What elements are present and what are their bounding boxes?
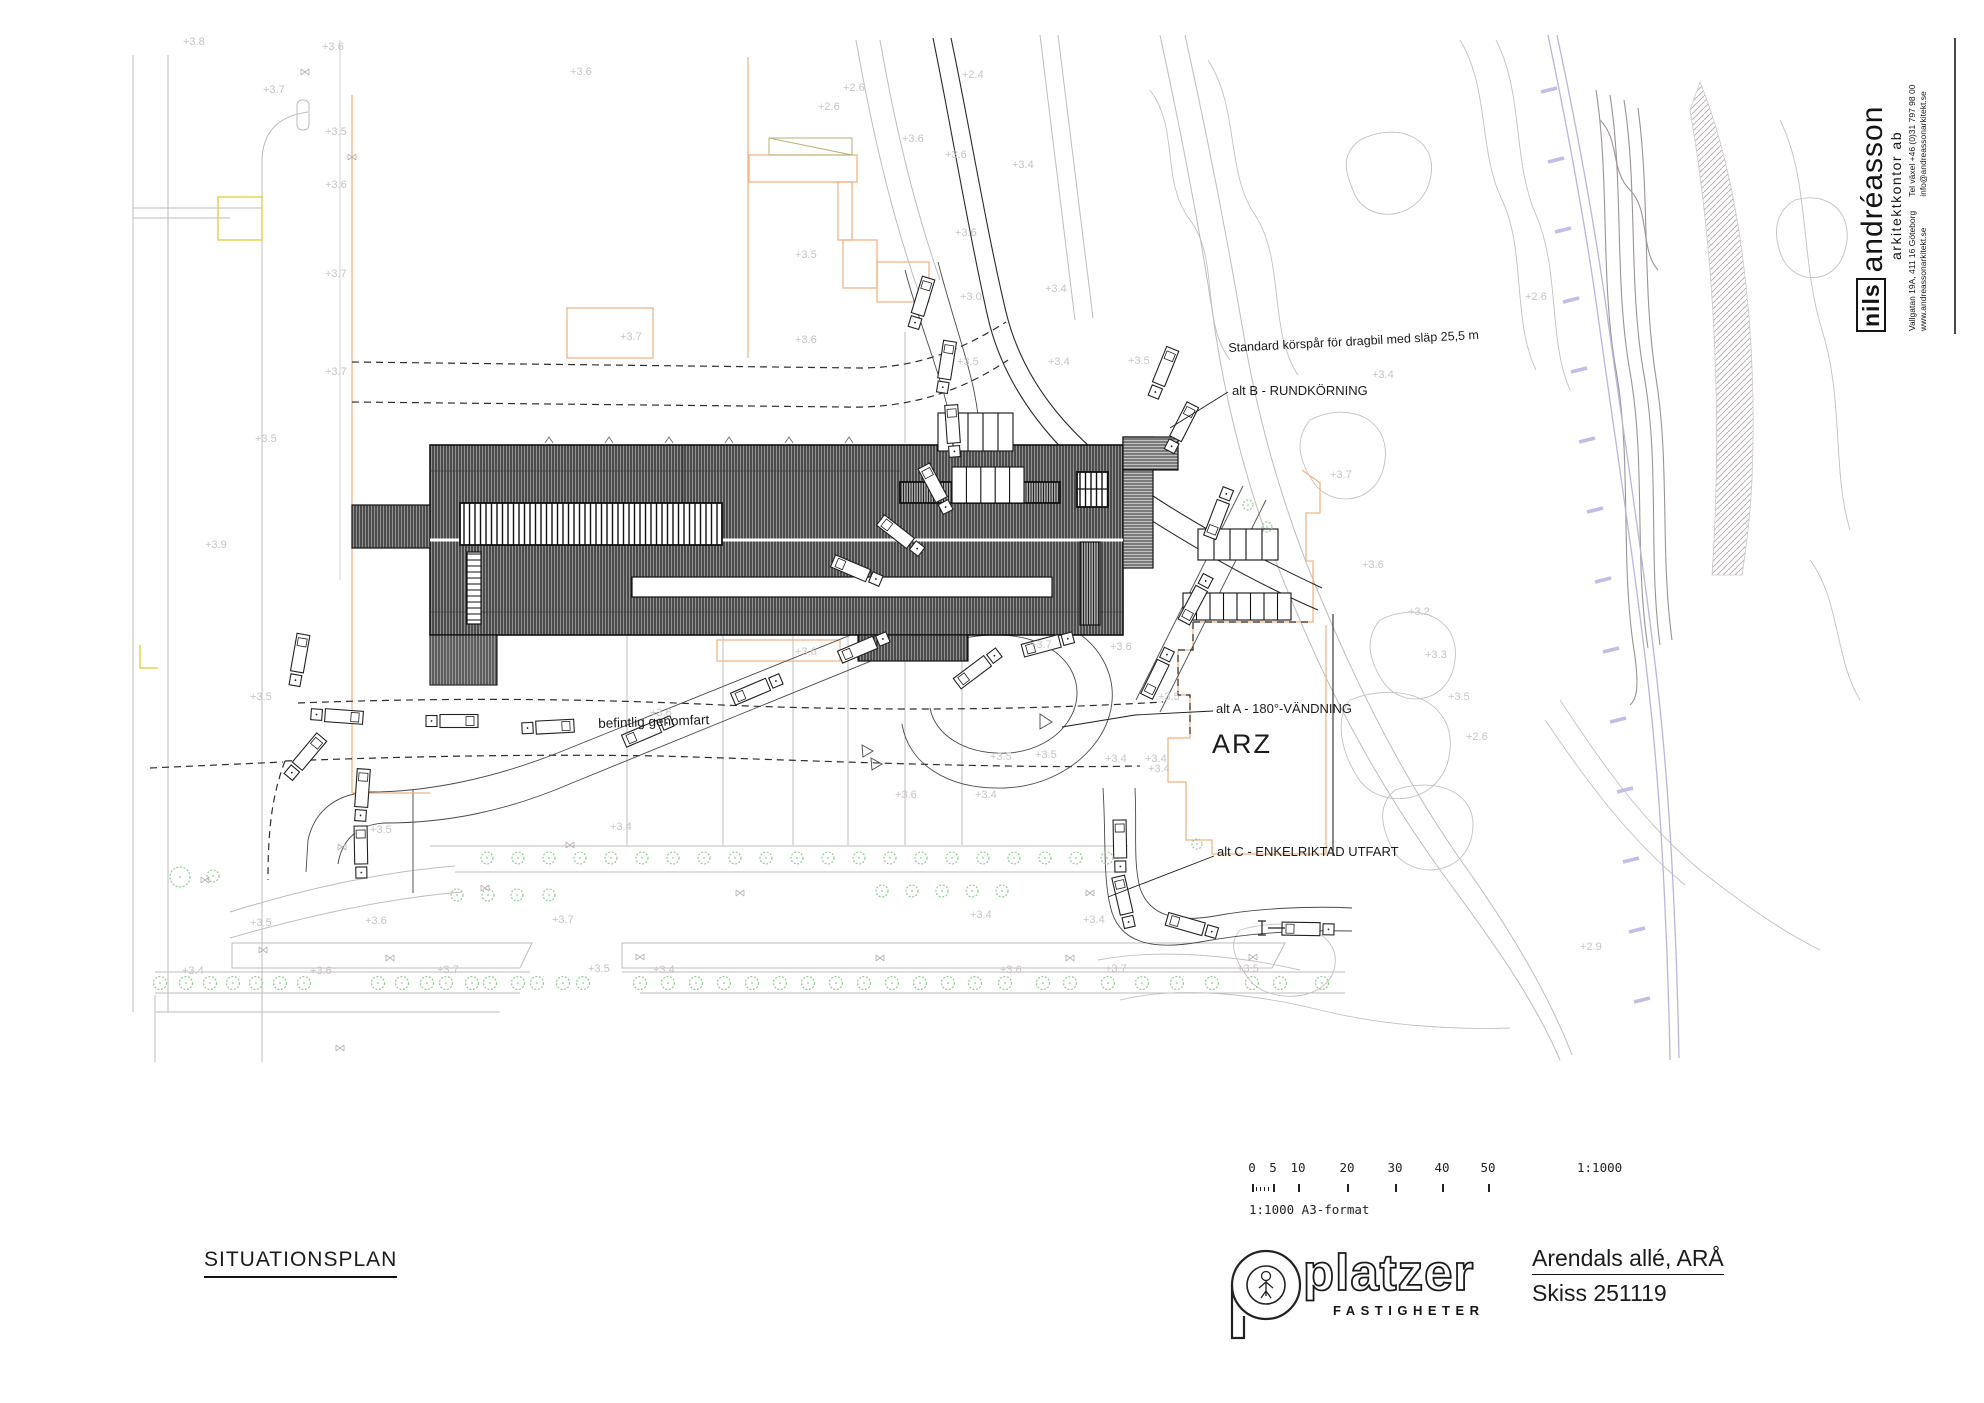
spot-elevation-label: +3.5	[250, 691, 272, 703]
tree-center-dot	[579, 857, 581, 859]
spot-elevation-label: +3.5	[990, 751, 1012, 763]
railway-sleeper	[1603, 648, 1619, 652]
spot-elevation-label: +3.5	[1237, 963, 1259, 975]
tree-center-dot	[723, 982, 725, 984]
sheet-edge-rule	[1954, 38, 1956, 334]
spot-elevation-label: +3.3	[1425, 649, 1447, 661]
spot-elevation-label: +3.8	[183, 36, 205, 48]
spot-elevation-label: +3.6	[325, 179, 347, 191]
spot-elevation-label: +3.5	[250, 917, 272, 929]
spot-elevation-label: +3.5	[255, 433, 277, 445]
spot-elevation-label: +3.7	[620, 331, 642, 343]
railway-sleeper	[1617, 788, 1633, 792]
scale-minor-tick	[1264, 1187, 1265, 1191]
railway-sleeper	[1634, 998, 1650, 1002]
spot-elevation-label: +3.5	[957, 356, 979, 368]
railway-sleeper	[1629, 928, 1645, 932]
spot-elevation-label: +3.4	[1048, 356, 1070, 368]
spot-elevation-label: +3.4	[1012, 159, 1034, 171]
tree-center-dot	[1279, 982, 1281, 984]
spot-elevation-label: +3.6	[1000, 964, 1022, 976]
spot-elevation-label: +3.2	[1408, 606, 1430, 618]
scale-number: 30	[1387, 1160, 1402, 1175]
spot-elevation-label: +3.0	[960, 291, 982, 303]
spot-elevation-label: +3.4	[653, 964, 675, 976]
lamp-icon	[1086, 890, 1094, 896]
tree-center-dot	[1013, 857, 1015, 859]
lamp-icon	[386, 955, 394, 961]
sketch-number: Skiss 251119	[1532, 1280, 1667, 1307]
label-alt-a: alt A - 180°-VÄNDNING	[1216, 701, 1352, 716]
tree-center-dot	[1247, 504, 1249, 506]
railway-sleeper	[1610, 718, 1626, 722]
spot-elevation-label: +3.6	[795, 646, 817, 658]
tree-center-dot	[471, 982, 473, 984]
tree-center-dot	[1176, 982, 1178, 984]
spot-elevation-label: +3.6	[795, 334, 817, 346]
tree-center-dot	[827, 857, 829, 859]
drawing-sheet: +3.8+3.7+3.6+3.5+3.6+3.7+3.7+3.5+3.9+3.5…	[0, 0, 1984, 1403]
railway-sleeper	[1587, 508, 1603, 512]
scale-minor-tick	[1256, 1187, 1257, 1191]
tree-center-dot	[891, 982, 893, 984]
tree-center-dot	[445, 982, 447, 984]
tree-center-dot	[456, 894, 458, 896]
railway-sleeper	[1595, 578, 1611, 582]
scale-tick	[1442, 1184, 1444, 1192]
tree-center-dot	[303, 982, 305, 984]
lamp-icon	[1066, 955, 1074, 961]
spot-elevation-label: +2.9	[1580, 941, 1602, 953]
spot-elevation-label: +3.4	[1105, 753, 1127, 765]
tree-center-dot	[582, 982, 584, 984]
lamp-icon	[259, 947, 267, 953]
tree-center-dot	[517, 982, 519, 984]
truck-icon	[907, 276, 935, 330]
tree-center-dot	[641, 857, 643, 859]
olive-outline	[769, 138, 852, 155]
spot-elevation-label: +3.4	[1045, 283, 1067, 295]
spot-elevation-label: +3.7	[1030, 639, 1052, 651]
tree-center-dot	[426, 982, 428, 984]
tree-center-dot	[548, 894, 550, 896]
architect-contact: Tel växel +46 (0)31 797 98 00 info@andre…	[1907, 85, 1928, 197]
truck-icon	[1113, 820, 1127, 872]
spot-elevation-label: +3.4	[1372, 369, 1394, 381]
scale-ratio: 1:1000	[1577, 1160, 1622, 1175]
architect-logo-prefix: nils	[1856, 278, 1886, 332]
spot-elevation-label: +3.4	[610, 821, 632, 833]
yellow-marks	[140, 197, 262, 668]
spot-elevation-label: +3.5	[1128, 355, 1150, 367]
project-title: Arendals allé, ARÅ	[1532, 1245, 1724, 1275]
tree-center-dot	[209, 982, 211, 984]
tree-center-dot	[703, 857, 705, 859]
platzer-logo-word: platzer	[1303, 1243, 1474, 1302]
tree-center-dot	[974, 982, 976, 984]
tree-center-dot	[610, 857, 612, 859]
truck-icon	[283, 733, 326, 781]
tree-center-dot	[1069, 982, 1071, 984]
tree-center-dot	[779, 982, 781, 984]
truck-icon	[522, 719, 575, 735]
scale-tick	[1252, 1184, 1254, 1192]
truck-icon	[288, 633, 310, 686]
scale-format-note: 1:1000 A3-format	[1249, 1202, 1369, 1217]
railway-sleeper	[1579, 438, 1595, 442]
site-plan-canvas: +3.8+3.7+3.6+3.5+3.6+3.7+3.7+3.5+3.9+3.5…	[0, 0, 1984, 1403]
scale-number: 50	[1480, 1160, 1495, 1175]
spot-elevation-label: +3.6	[1110, 641, 1132, 653]
architect-logo-name: andréasson	[1859, 106, 1886, 273]
truck-icon	[1147, 346, 1179, 399]
truck-icon	[354, 769, 371, 822]
spot-elevation-label: +3.4	[1145, 753, 1167, 765]
lamp-icon	[566, 842, 574, 848]
tree-center-dot	[279, 982, 281, 984]
tree-center-dot	[536, 982, 538, 984]
label-alt-b: alt B - RUNDKÖRNING	[1232, 383, 1368, 398]
label-alt-c: alt C - ENKELRIKTAD UTFART	[1217, 844, 1399, 859]
railway-sleeper	[1548, 158, 1564, 162]
tree-center-dot	[1251, 982, 1253, 984]
spot-elevation-label: +3.7	[263, 84, 285, 96]
tree-center-dot	[1001, 890, 1003, 892]
scale-number: 10	[1290, 1160, 1305, 1175]
lamp-icon	[736, 890, 744, 896]
scale-number: 20	[1339, 1160, 1354, 1175]
scale-number: 0	[1248, 1160, 1256, 1175]
railway-sleeper	[1571, 368, 1587, 372]
tree-center-dot	[765, 857, 767, 859]
railway-line	[1548, 35, 1679, 1060]
tree-center-dot	[1106, 857, 1108, 859]
tree-center-dot	[487, 894, 489, 896]
railway-sleeper	[1541, 88, 1557, 92]
spot-elevation-label: +2.6	[1466, 731, 1488, 743]
tree-center-dot	[807, 982, 809, 984]
spot-elevation-label: +2.6	[843, 82, 865, 94]
railway-sleepers	[1541, 88, 1650, 1002]
tree-center-dot	[562, 982, 564, 984]
tree-center-dot	[517, 857, 519, 859]
lamp-icon	[1249, 954, 1257, 960]
tree-center-dot	[982, 857, 984, 859]
railway-sleeper	[1623, 858, 1639, 862]
spot-elevation-label: +3.9	[205, 539, 227, 551]
spot-elevation-label: +3.4	[182, 965, 204, 977]
drawing-title: SITUATIONSPLAN	[204, 1248, 397, 1278]
tree-center-dot	[185, 982, 187, 984]
tree-center-dot	[1321, 982, 1323, 984]
spot-elevation-label: +3.5	[1035, 749, 1057, 761]
architect-logo-block: nils andréasson arkitektkontor ab Vallga…	[1856, 58, 1932, 332]
lamp-icon	[481, 885, 489, 891]
scale-tick	[1298, 1184, 1300, 1192]
tree-center-dot	[863, 982, 865, 984]
tree-center-dot	[159, 982, 161, 984]
tree-center-dot	[401, 982, 403, 984]
spot-elevation-label: +3.5	[1448, 691, 1470, 703]
tree-center-dot	[1107, 982, 1109, 984]
tree-center-dot	[255, 982, 257, 984]
contour-band-dark	[1596, 90, 1672, 705]
spot-elevation-label: +3.5	[588, 963, 610, 975]
scale-number: 5	[1269, 1160, 1277, 1175]
truck-icon	[1163, 402, 1198, 454]
truck-icon	[311, 708, 364, 725]
truck-icon	[354, 826, 368, 878]
spot-elevation-label: +3.7	[437, 964, 459, 976]
spot-elevation-label: +3.6	[955, 227, 977, 239]
spot-elevation-label: +3.6	[322, 41, 344, 53]
spot-elevation-label: +3.6	[365, 915, 387, 927]
tree-center-dot	[796, 857, 798, 859]
spot-elevation-label: +3.5	[1158, 691, 1180, 703]
tree-center-dot	[751, 982, 753, 984]
spot-elevation-label: +2.6	[1525, 291, 1547, 303]
tree-center-dot	[947, 982, 949, 984]
railway-sleeper	[1555, 228, 1571, 232]
spot-elevation-label: +3.6	[310, 965, 332, 977]
scale-tick	[1395, 1184, 1397, 1192]
tree-center-dot	[911, 890, 913, 892]
tree-center-dot	[1196, 843, 1198, 845]
tree-center-dot	[548, 857, 550, 859]
scale-minor-tick	[1268, 1187, 1269, 1191]
parking-stall-row	[952, 467, 1024, 503]
railway-sleeper	[1563, 298, 1579, 302]
scale-number: 40	[1434, 1160, 1449, 1175]
embankment-hatch	[1690, 82, 1753, 575]
tree-center-dot	[212, 875, 214, 877]
scale-tick	[1273, 1184, 1275, 1192]
scale-tick	[1347, 1184, 1349, 1192]
spot-elevation-label: +3.6	[570, 66, 592, 78]
tree-center-dot	[920, 857, 922, 859]
truck-icon	[936, 340, 957, 393]
tree-center-dot	[951, 857, 953, 859]
spot-elevation-label: +3.7	[325, 366, 347, 378]
spot-elevation-label: +3.5	[795, 249, 817, 261]
truck-icon	[426, 715, 478, 728]
tree-center-dot	[179, 876, 181, 878]
spot-elevation-label: +3.6	[1362, 559, 1384, 571]
truck-icon	[1282, 922, 1334, 936]
scale-tick	[1488, 1184, 1490, 1192]
architect-address: Vallgatan 19A, 411 16 Göteborg www.andre…	[1907, 211, 1928, 331]
label-arz: ARZ	[1212, 729, 1272, 760]
spot-elevation-label: +3.5	[370, 824, 392, 836]
tree-center-dot	[667, 982, 669, 984]
tree-center-dot	[1141, 982, 1143, 984]
lamp-icon	[301, 69, 309, 75]
tree-center-dot	[1211, 982, 1213, 984]
scale-minor-tick	[1260, 1187, 1261, 1191]
spot-elevation-label: +3.4	[1083, 914, 1105, 926]
spot-elevation-label: +2.4	[962, 69, 984, 81]
tree-center-dot	[639, 982, 641, 984]
spot-elevation-label: +3.5	[325, 126, 347, 138]
tree-center-dot	[1004, 982, 1006, 984]
tree-center-dot	[695, 982, 697, 984]
tree-center-dot	[858, 857, 860, 859]
spot-elevation-label: +3.7	[552, 914, 574, 926]
spot-elevation-label: +2.6	[818, 101, 840, 113]
spot-elevation-label: +3.4	[975, 789, 997, 801]
tree-center-dot	[1266, 526, 1268, 528]
spot-elevation-label: +3.7	[1330, 469, 1352, 481]
tree-center-dot	[881, 890, 883, 892]
lamp-icon	[876, 955, 884, 961]
tree-center-dot	[516, 894, 518, 896]
tree-center-dot	[1044, 857, 1046, 859]
tree-center-dot	[734, 857, 736, 859]
tree-center-dot	[486, 857, 488, 859]
spot-elevation-label: +3.4	[970, 909, 992, 921]
tree-center-dot	[889, 857, 891, 859]
tree-center-dot	[919, 982, 921, 984]
tree-center-dot	[232, 982, 234, 984]
tree-center-dot	[835, 982, 837, 984]
tree-center-dot	[672, 857, 674, 859]
spot-elevation-label: +3.7	[325, 268, 347, 280]
architect-logo-subtitle: arkitektkontor ab	[1888, 58, 1904, 260]
spot-elevation-label: +3.6	[945, 149, 967, 161]
lamp-icon	[336, 1045, 344, 1051]
tree-center-dot	[1042, 982, 1044, 984]
spot-elevation-label: +3.6	[895, 789, 917, 801]
tree-center-dot	[1075, 857, 1077, 859]
spot-elevation-label: +3.6	[902, 133, 924, 145]
tree-center-dot	[941, 890, 943, 892]
tree-center-dot	[377, 982, 379, 984]
platzer-logo-sub: FASTIGHETER	[1333, 1303, 1485, 1318]
spot-elevation-label: +3.7	[1105, 963, 1127, 975]
tree-center-dot	[971, 890, 973, 892]
lamp-icon	[636, 954, 644, 960]
tree-center-dot	[489, 982, 491, 984]
